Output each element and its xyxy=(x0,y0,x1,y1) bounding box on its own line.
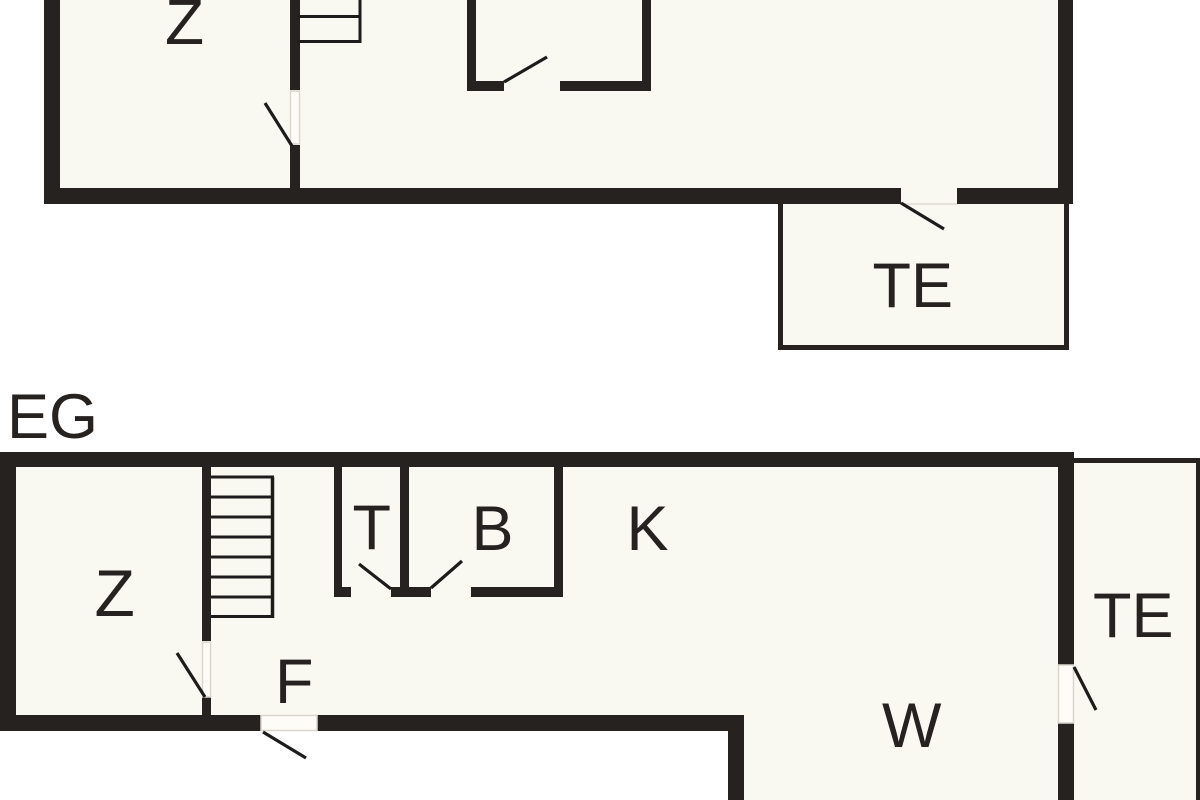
svg-text:B: B xyxy=(472,494,514,564)
svg-text:Z: Z xyxy=(95,556,135,630)
svg-text:W: W xyxy=(882,691,942,761)
svg-text:TE: TE xyxy=(873,251,954,321)
svg-text:EG: EG xyxy=(7,382,98,452)
svg-text:F: F xyxy=(275,647,313,717)
svg-text:K: K xyxy=(627,494,669,564)
svg-text:T: T xyxy=(353,493,391,563)
svg-text:TE: TE xyxy=(1093,581,1174,651)
svg-text:Z: Z xyxy=(165,0,204,58)
